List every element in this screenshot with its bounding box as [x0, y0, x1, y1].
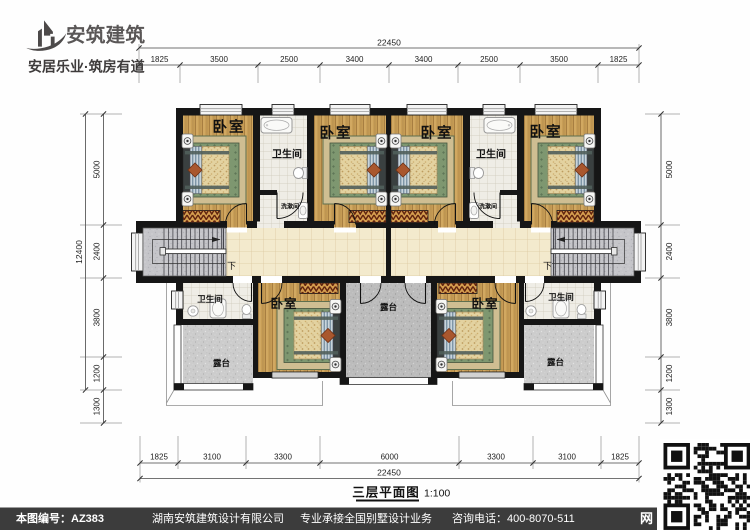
svg-text:1200: 1200: [665, 364, 674, 382]
svg-text:卫生间: 卫生间: [476, 148, 506, 161]
svg-text:2400: 2400: [93, 242, 102, 260]
svg-text:露台: 露台: [380, 302, 398, 312]
svg-text:2500: 2500: [280, 55, 298, 64]
svg-text:网: 网: [640, 511, 653, 526]
svg-text:3400: 3400: [346, 55, 364, 64]
svg-text:3400: 3400: [415, 55, 433, 64]
svg-text:洗漱间: 洗漱间: [479, 203, 497, 211]
svg-text:湖南安筑建筑设计有限公司: 湖南安筑建筑设计有限公司: [152, 511, 284, 525]
svg-text:6000: 6000: [381, 453, 399, 462]
svg-text:露台: 露台: [547, 357, 565, 367]
svg-text:3800: 3800: [93, 308, 102, 326]
svg-text:3500: 3500: [210, 55, 228, 64]
svg-text:3300: 3300: [487, 453, 505, 462]
svg-text:卫生间: 卫生间: [548, 292, 574, 302]
svg-text:5000: 5000: [93, 160, 102, 178]
svg-text:卫生间: 卫生间: [272, 148, 302, 161]
svg-text:卧室: 卧室: [213, 118, 246, 136]
svg-text:3100: 3100: [558, 453, 576, 462]
svg-text:咨询电话：400-8070-511: 咨询电话：400-8070-511: [452, 511, 575, 525]
svg-text:本图编号：AZ383: 本图编号：AZ383: [16, 511, 104, 525]
svg-text:5000: 5000: [665, 160, 674, 178]
svg-text:安筑建筑: 安筑建筑: [66, 24, 145, 47]
svg-text:专业承接全国别墅设计业务: 专业承接全国别墅设计业务: [300, 511, 432, 525]
svg-text:3500: 3500: [550, 55, 568, 64]
svg-text:12400: 12400: [74, 240, 84, 264]
svg-text:卫生间: 卫生间: [197, 294, 223, 304]
svg-text:卧室: 卧室: [421, 124, 454, 142]
svg-text:22450: 22450: [377, 468, 401, 478]
svg-text:2500: 2500: [480, 55, 498, 64]
svg-text:3800: 3800: [665, 308, 674, 326]
svg-text:1825: 1825: [150, 453, 168, 462]
svg-text:1825: 1825: [611, 453, 629, 462]
svg-text:3300: 3300: [274, 453, 292, 462]
svg-text:1200: 1200: [93, 364, 102, 382]
svg-text:卧室: 卧室: [530, 123, 563, 141]
svg-text:22450: 22450: [377, 38, 401, 48]
svg-text:下: 下: [543, 261, 552, 271]
svg-text:2400: 2400: [665, 242, 674, 260]
svg-text:洗漱间: 洗漱间: [281, 203, 299, 211]
svg-text:露台: 露台: [213, 358, 231, 368]
svg-text:1300: 1300: [665, 397, 674, 415]
svg-text:3100: 3100: [203, 453, 221, 462]
svg-text:1300: 1300: [93, 397, 102, 415]
svg-text:1825: 1825: [610, 55, 628, 64]
svg-text:下: 下: [227, 261, 236, 271]
svg-text:1:100: 1:100: [424, 488, 450, 500]
svg-text:卧室: 卧室: [320, 124, 353, 142]
svg-text:安居乐业·筑房有道: 安居乐业·筑房有道: [28, 59, 145, 75]
svg-text:1825: 1825: [151, 55, 169, 64]
svg-text:三层平面图: 三层平面图: [352, 486, 420, 500]
svg-text:卧室: 卧室: [270, 296, 297, 311]
svg-text:卧室: 卧室: [471, 296, 498, 311]
